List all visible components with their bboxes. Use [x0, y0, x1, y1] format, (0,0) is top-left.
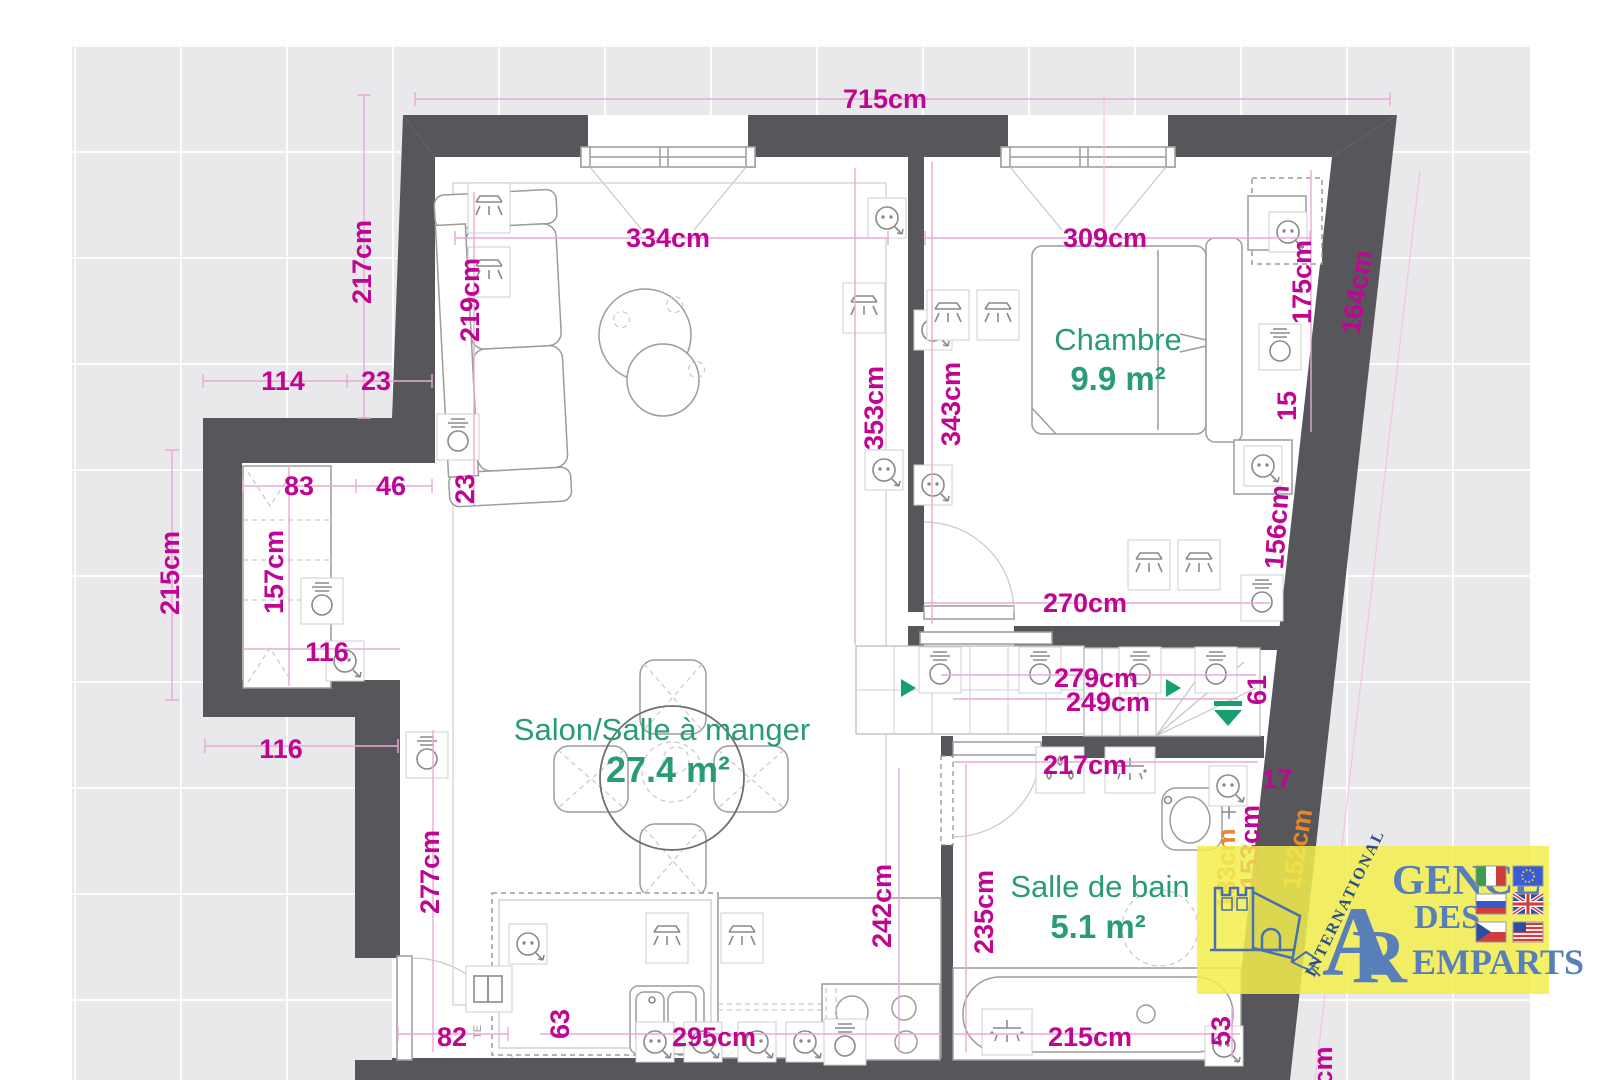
- room-label-salon: Salon/Salle à manger: [514, 712, 810, 747]
- wall-light-icon: [1128, 540, 1170, 590]
- dim-stair-width: 61: [1242, 675, 1272, 705]
- dim-step-outer: 116: [259, 734, 303, 764]
- power-socket-icon: [1209, 766, 1247, 806]
- uk-flag: [1513, 894, 1543, 914]
- bath-wall-opening: [941, 756, 953, 845]
- power-socket-icon: [786, 1022, 824, 1062]
- czech-flag: [1476, 922, 1506, 942]
- eu-flag: [1513, 866, 1543, 886]
- lamp-icon: [406, 732, 448, 778]
- dim-bath-height-a: 242cm: [867, 864, 897, 948]
- dim-sofa-length: 219cm: [455, 258, 485, 342]
- lamp-icon: [437, 414, 479, 460]
- ceiling-light-icon: [721, 913, 763, 963]
- power-socket-icon: [868, 198, 906, 238]
- dim-alcove-b: 46: [376, 471, 406, 501]
- light-switch: [466, 966, 512, 1012]
- russia-flag: [1476, 894, 1506, 914]
- dim-chambre-bottom: 270cm: [1043, 588, 1127, 618]
- room-area-salon: 27.4 m²: [606, 749, 730, 790]
- dim-salon-width: 334cm: [626, 223, 710, 253]
- dim-salon-height-a: 353cm: [859, 366, 889, 450]
- shower-head-icon: [982, 1009, 1032, 1055]
- dim-bath-height-b: 235cm: [969, 870, 999, 954]
- te-label: TE: [472, 1025, 484, 1039]
- agency-logo: INTERNATIONAL A GENCE R DES EMPARTS: [1197, 827, 1584, 999]
- dim-salon-height-b: 343cm: [936, 362, 966, 446]
- dim-cutoff: cm: [1308, 1046, 1338, 1080]
- lamp-icon: [1259, 324, 1301, 370]
- logo-word-emparts: EMPARTS: [1412, 942, 1584, 982]
- lamp-icon: [1195, 647, 1237, 693]
- dim-left-upper: 217cm: [347, 220, 377, 304]
- wall-light-icon: [1178, 540, 1220, 590]
- dim-left-mid: 215cm: [155, 531, 185, 615]
- dim-bath-corner: 17: [1262, 764, 1292, 794]
- ceiling-light-icon: [646, 913, 688, 963]
- power-socket-icon: [636, 1022, 674, 1062]
- room-label-bath: Salle de bain: [1010, 869, 1189, 904]
- lamp-icon: [824, 1019, 866, 1065]
- dim-bath-width: 217cm: [1043, 750, 1127, 780]
- wall-light-icon: [927, 290, 969, 340]
- room-area-bath: 5.1 m²: [1050, 908, 1145, 945]
- dim-left-lower: 277cm: [415, 830, 445, 914]
- dim-cabinet-width: 63: [545, 1009, 575, 1039]
- dim-alcove-height: 157cm: [259, 530, 289, 614]
- dim-chambre-width: 309cm: [1063, 223, 1147, 253]
- italy-flag: [1476, 866, 1506, 886]
- lamp-icon: [919, 647, 961, 693]
- dim-overall-width: 715cm: [843, 84, 927, 114]
- dim-bed-gap: 15: [1272, 391, 1302, 421]
- dim-bed-side: 175cm: [1287, 240, 1317, 324]
- dim-alcove-a: 83: [284, 471, 314, 501]
- dim-right-wall-lower: 156cm: [1259, 484, 1295, 570]
- dim-tub-length: 215cm: [1048, 1022, 1132, 1052]
- power-socket-icon: [1244, 446, 1282, 486]
- usa-flag: [1513, 922, 1543, 942]
- lamp-icon: [1241, 575, 1283, 621]
- wall-light-icon: [843, 283, 885, 333]
- floorplan-canvas: TE: [0, 0, 1597, 1080]
- dim-sofa-offset: 23: [450, 474, 480, 504]
- wall-light-icon: [977, 290, 1019, 340]
- power-socket-icon: [914, 465, 952, 505]
- dim-kitchen-width: 295cm: [672, 1022, 756, 1052]
- dim-entry-door: 82: [437, 1022, 467, 1052]
- logo-initial-r: R: [1352, 915, 1408, 999]
- dim-alcove-width: 116: [305, 637, 349, 667]
- dim-hall-b: 249cm: [1066, 687, 1150, 717]
- lamp-icon: [301, 578, 343, 624]
- logo-word-des: DES: [1414, 899, 1480, 936]
- room-label-chamb: Chambre: [1054, 322, 1182, 357]
- power-socket-icon: [509, 924, 547, 964]
- power-socket-icon: [865, 450, 903, 490]
- room-area-chambre: 9.9 m²: [1070, 360, 1165, 397]
- dim-tub-gap: 53: [1206, 1016, 1236, 1046]
- dim-step-width: 114: [261, 366, 305, 396]
- chair: [640, 824, 706, 898]
- dim-step-wall: 23: [361, 366, 391, 396]
